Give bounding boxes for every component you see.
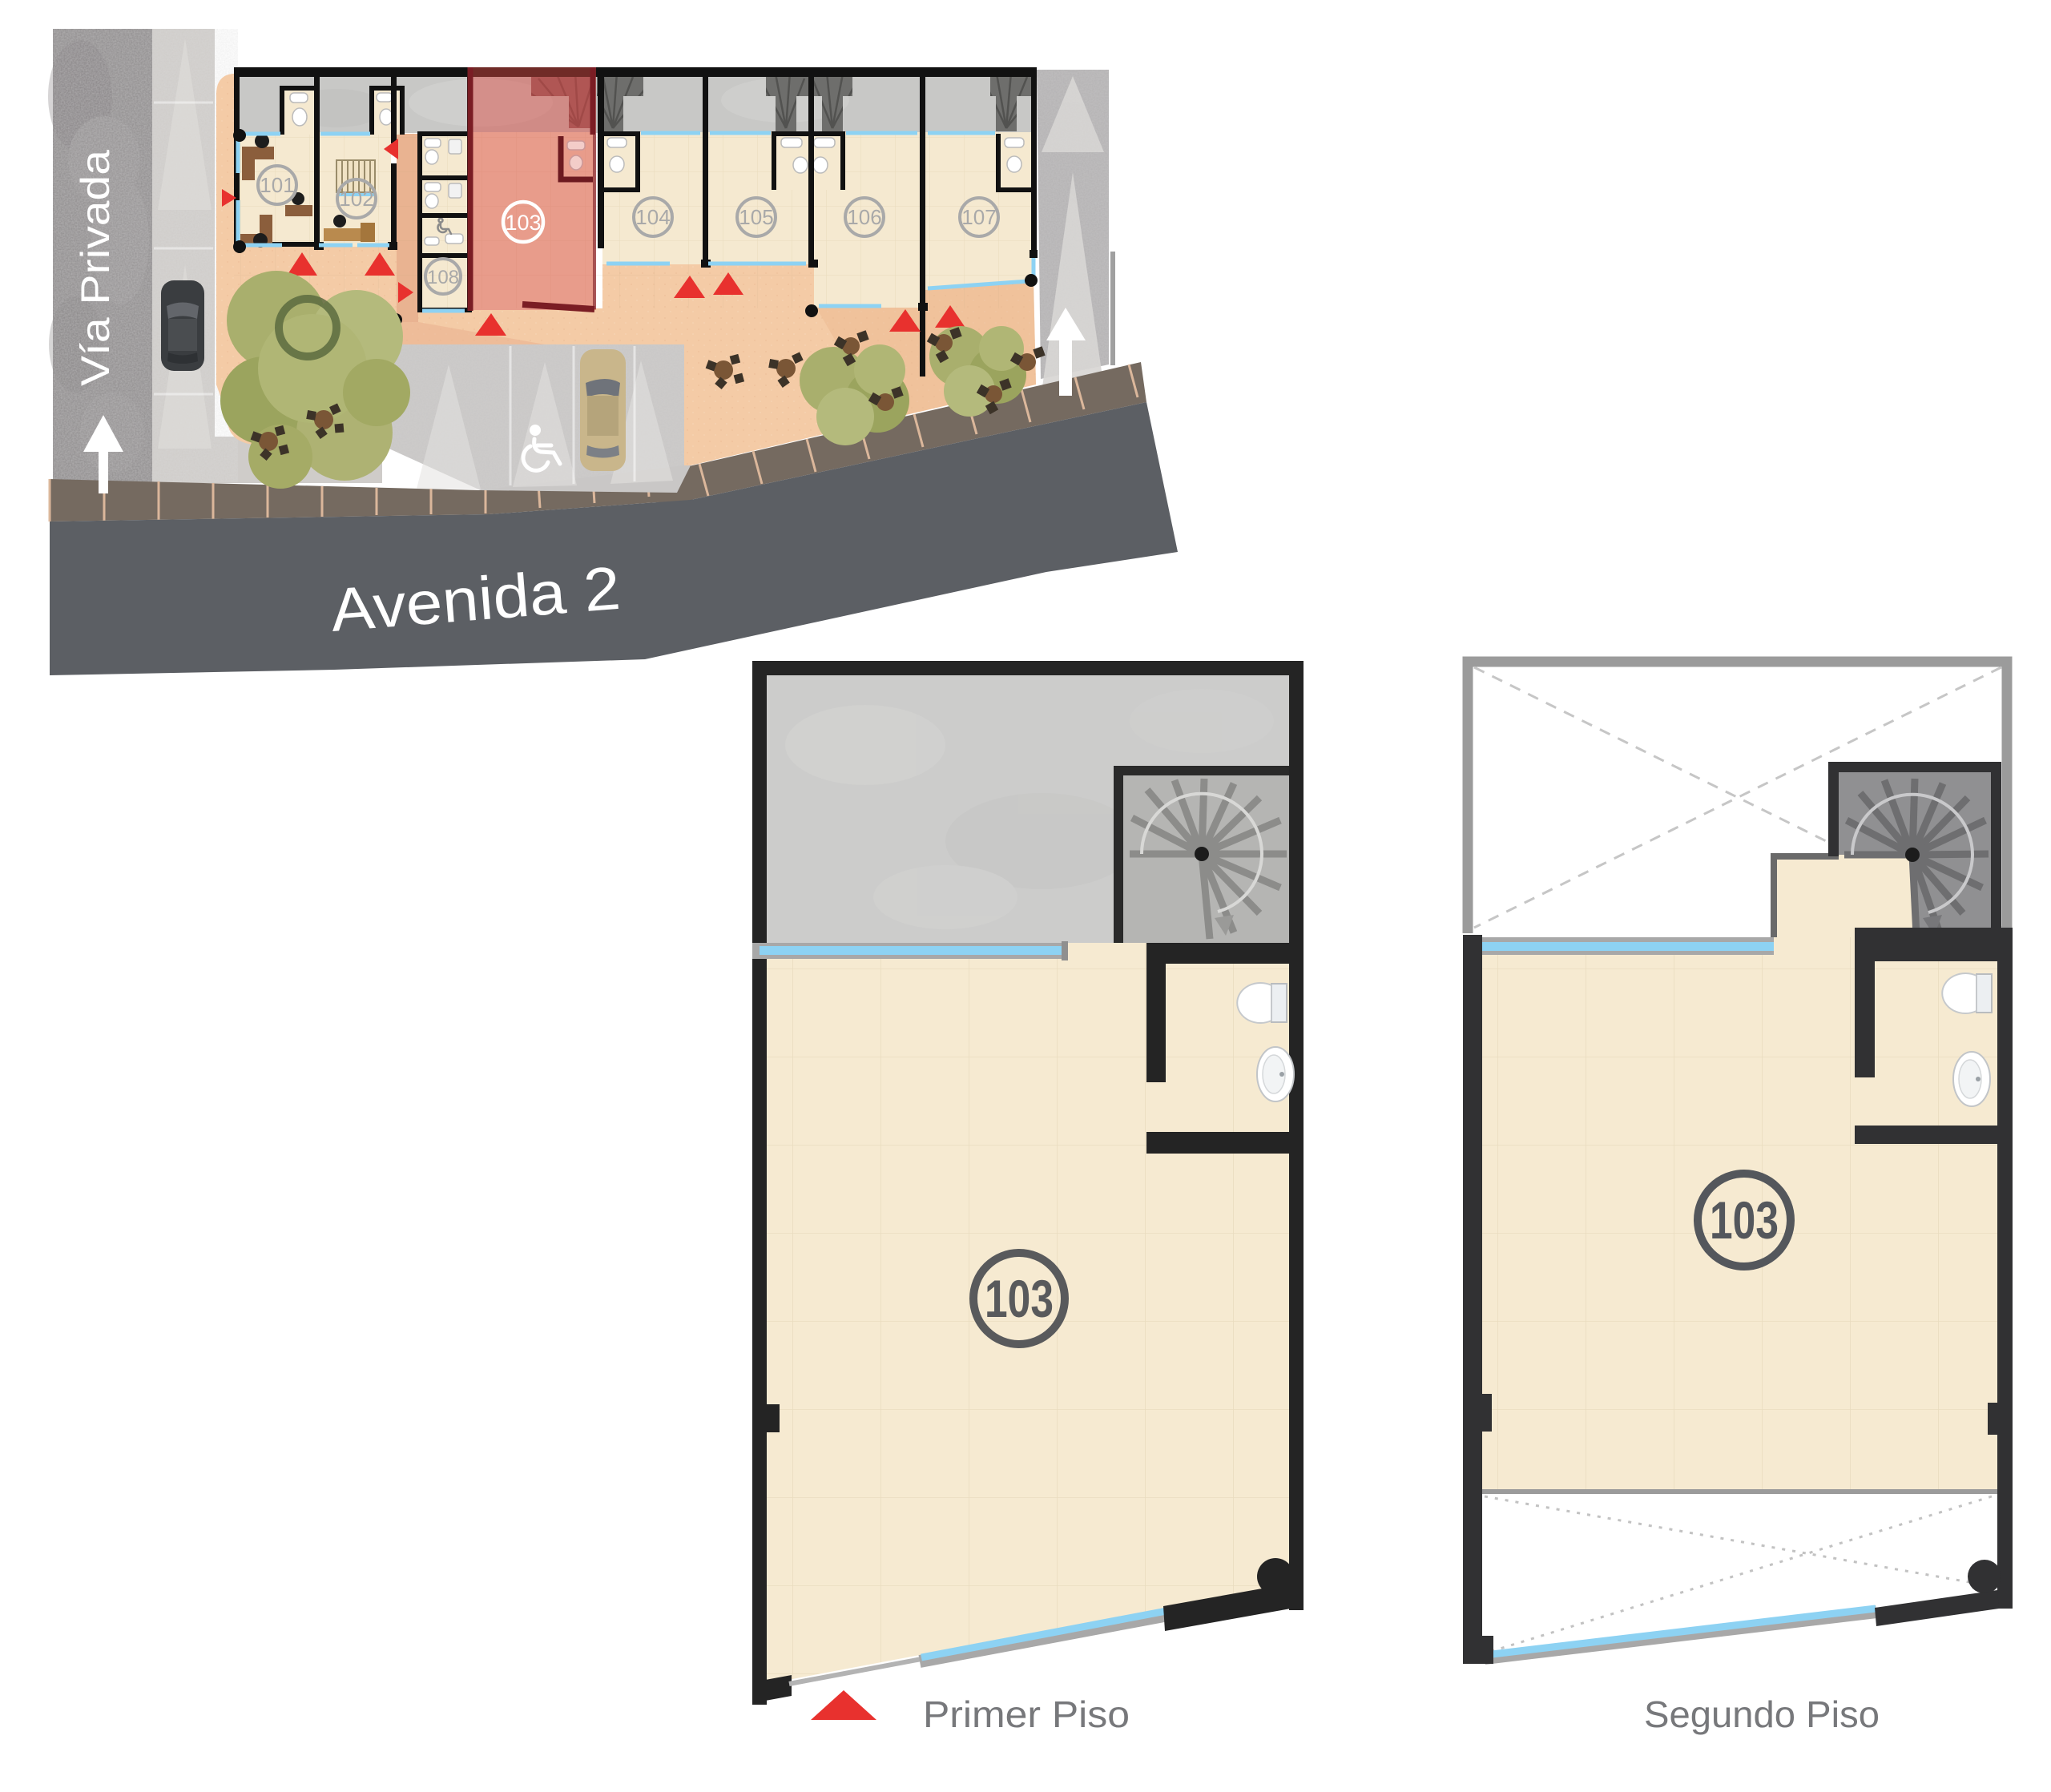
svg-text:103: 103 (505, 211, 541, 235)
svg-text:108: 108 (427, 267, 459, 288)
svg-text:101: 101 (260, 173, 294, 197)
svg-text:102: 102 (339, 187, 373, 211)
svg-text:105: 105 (739, 205, 773, 229)
svg-text:Primer Piso: Primer Piso (923, 1693, 1130, 1735)
svg-text:107: 107 (961, 205, 996, 229)
svg-text:Vía Privada: Vía Privada (73, 150, 118, 386)
svg-text:103: 103 (985, 1269, 1054, 1328)
svg-text:104: 104 (635, 205, 670, 229)
svg-text:Segundo Piso: Segundo Piso (1644, 1693, 1880, 1735)
svg-text:103: 103 (1710, 1190, 1779, 1250)
svg-text:106: 106 (847, 205, 881, 229)
